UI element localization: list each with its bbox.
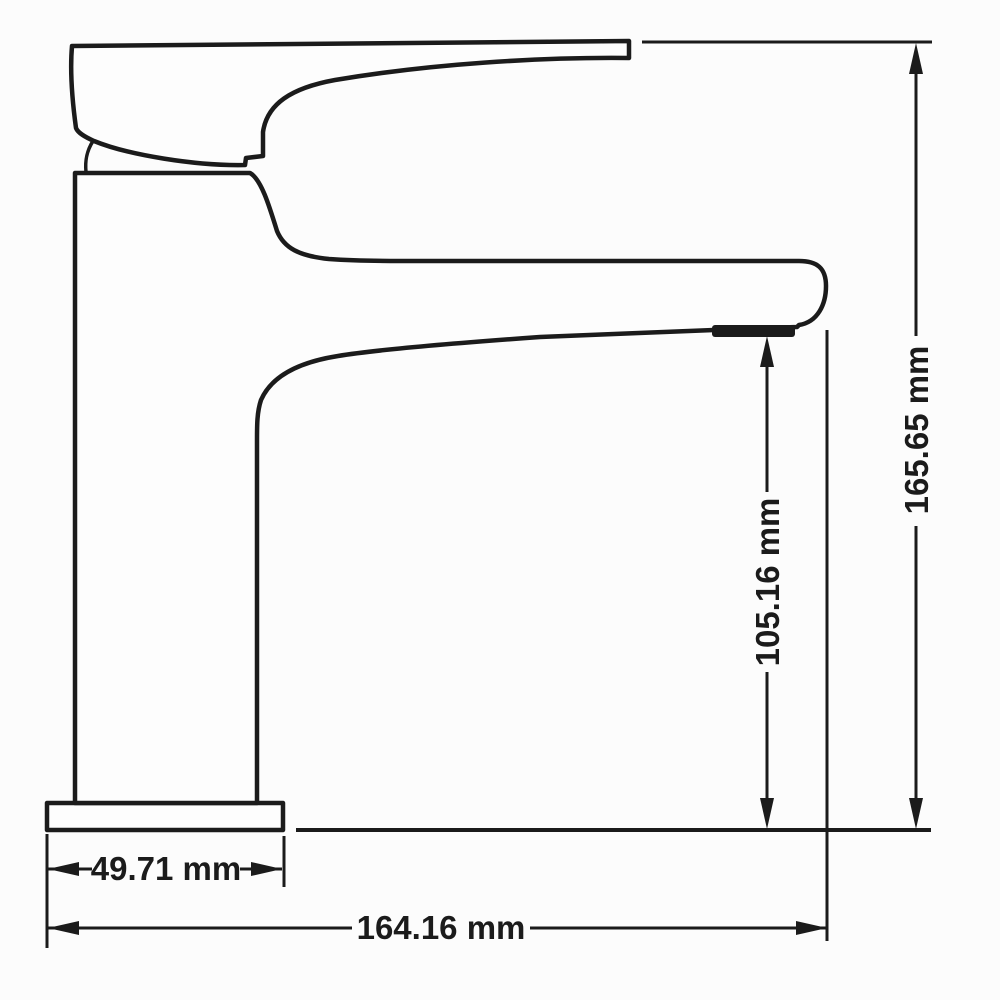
- dimension-label-spout-outlet-height: 105.16 mm: [749, 498, 786, 667]
- faucet-base-plate: [47, 803, 283, 830]
- technical-drawing-canvas: 165.65 mm 105.16 mm 49.71 mm: [0, 0, 1000, 1000]
- dimension-spout-outlet-height: 105.16 mm: [749, 336, 786, 829]
- dimension-label-base-width: 49.71 mm: [91, 850, 241, 887]
- dimension-label-overall-height: 165.65 mm: [898, 346, 935, 515]
- faucet-dimension-drawing: 165.65 mm 105.16 mm 49.71 mm: [0, 0, 1000, 1000]
- arrowhead-down-icon: [760, 798, 774, 829]
- arrowhead-right-icon: [796, 921, 827, 935]
- faucet-outline-group: [47, 41, 931, 830]
- dimension-label-overall-length: 164.16 mm: [357, 909, 526, 946]
- faucet-body-spout-outline: [75, 173, 826, 803]
- arrowhead-down-icon: [909, 798, 923, 829]
- cartridge-collar-seam: [86, 141, 93, 172]
- dimension-base-width: 49.71 mm: [47, 834, 284, 948]
- faucet-lever-handle-outline: [71, 41, 629, 165]
- aerator-outlet: [712, 325, 795, 337]
- dimension-overall-length: 164.16 mm: [48, 909, 827, 946]
- dimension-overall-height: 165.65 mm: [642, 42, 935, 829]
- arrowhead-right-icon: [251, 862, 282, 876]
